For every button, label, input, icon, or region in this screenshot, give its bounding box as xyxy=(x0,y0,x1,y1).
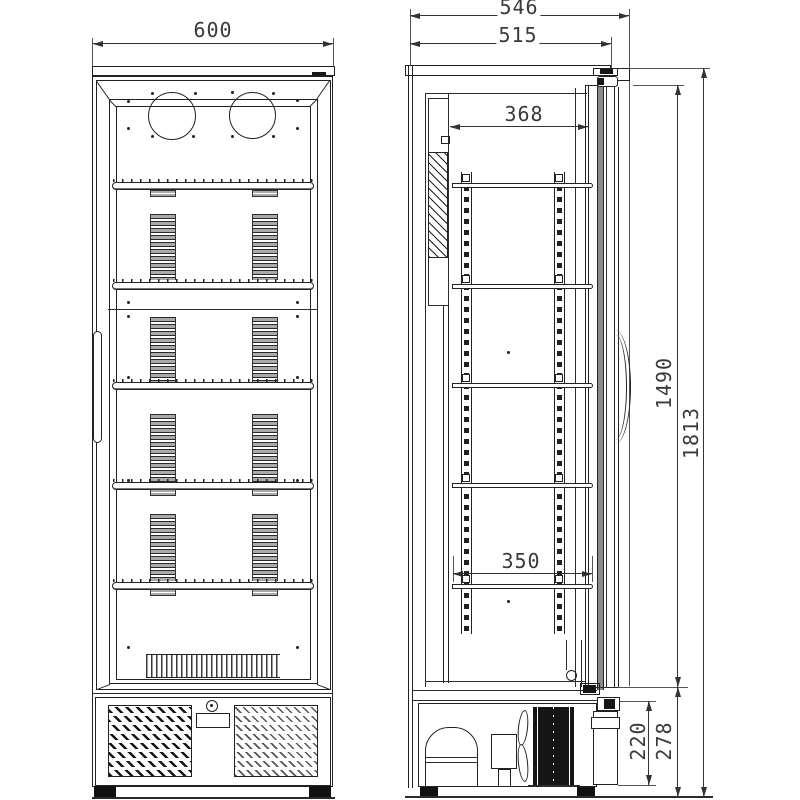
shelf-bracket xyxy=(252,489,278,496)
shelf-bracket-side xyxy=(555,374,563,382)
air-duct-lower xyxy=(443,305,449,683)
door-bottom-hinge xyxy=(583,685,596,693)
shelf-bracket xyxy=(252,190,278,197)
screw-hole xyxy=(272,135,275,138)
dimension-label-body-depth: 515 xyxy=(496,25,539,45)
dimension-label-overall-height: 1813 xyxy=(681,405,701,461)
fan-pedestal xyxy=(498,769,511,787)
shelf-bracket-side xyxy=(462,174,470,182)
interior-floor xyxy=(425,681,585,682)
shelf-bracket-side xyxy=(462,374,470,382)
foot-right xyxy=(309,786,331,797)
dimension-line xyxy=(677,687,678,797)
shelf-side xyxy=(452,383,593,388)
drier-band xyxy=(591,717,620,729)
shelf-bracket-side xyxy=(555,575,563,583)
screw-hole xyxy=(127,301,130,304)
evaporator-grille xyxy=(146,654,280,678)
shelf xyxy=(112,282,314,290)
screw-hole xyxy=(231,135,234,138)
back-wall xyxy=(408,65,413,788)
hinge-pivot-pin xyxy=(598,78,604,85)
fan-motor xyxy=(491,734,517,769)
shelf-bracket-side xyxy=(555,275,563,283)
duct-panel-cap xyxy=(428,98,448,99)
shelf-bracket xyxy=(150,589,176,596)
dimension-line xyxy=(450,126,588,127)
shelf-bracket-side xyxy=(462,575,470,583)
lock-channel xyxy=(566,640,567,670)
duct-panel-front xyxy=(448,93,449,305)
fan-hole-left xyxy=(148,92,196,140)
evaporator-block xyxy=(428,152,448,258)
shelf-track xyxy=(150,214,176,280)
extension-line xyxy=(629,9,630,686)
screw-hole xyxy=(127,100,130,103)
base-line xyxy=(92,693,333,694)
door-handle-front xyxy=(93,331,102,443)
condenser-fin-line xyxy=(537,707,538,785)
dimension-label-shelf-depth: 350 xyxy=(499,551,542,571)
screw-hole xyxy=(296,99,299,102)
shelf-bracket xyxy=(150,489,176,496)
vent-grille-left xyxy=(108,705,192,777)
foot-left xyxy=(94,786,116,797)
glass-edge xyxy=(116,106,311,680)
shelf-track xyxy=(252,414,278,482)
door-glass-core xyxy=(597,85,604,690)
screw-hole xyxy=(272,92,275,95)
dimension-label-machine-compartment-height: 220 xyxy=(628,719,648,762)
shelf-track xyxy=(252,214,278,280)
compressor-band xyxy=(426,762,477,763)
screw-hole xyxy=(151,92,154,95)
extension-line xyxy=(618,785,656,786)
screw-hole xyxy=(151,135,154,138)
shelf-track xyxy=(252,514,278,581)
dimension-line xyxy=(453,573,592,574)
dimension-line xyxy=(93,43,333,44)
screw-hole xyxy=(194,92,197,95)
screw-hole xyxy=(127,315,130,318)
interior-ceiling xyxy=(425,93,587,94)
drier-mount-block xyxy=(604,699,615,709)
shelf xyxy=(112,482,314,490)
door-glass-line xyxy=(606,85,607,687)
compartment-top-line xyxy=(412,700,597,701)
lock-pin xyxy=(210,704,213,707)
door-seam-line xyxy=(108,309,318,310)
condenser-center-line xyxy=(553,707,554,785)
fan-hole-right xyxy=(229,92,276,139)
extension-line xyxy=(333,38,334,66)
shelf-bracket-side xyxy=(462,474,470,482)
dimension-line xyxy=(703,68,704,797)
condenser-fin-line xyxy=(569,707,570,785)
shelf-side xyxy=(452,183,593,188)
duct-panel-side xyxy=(428,98,429,152)
compressor-band xyxy=(426,757,477,758)
lock-cylinder-side xyxy=(566,670,577,681)
condenser-base xyxy=(528,785,580,787)
dimension-label-front-width: 600 xyxy=(191,20,234,40)
dimension-label-overall-depth: 546 xyxy=(497,0,540,17)
shelf-side xyxy=(452,483,593,488)
dimension-line xyxy=(677,85,678,687)
shelf-side xyxy=(452,284,593,289)
screw-hole xyxy=(296,315,299,318)
screw-hole xyxy=(296,646,299,649)
ground-line xyxy=(405,796,713,798)
shelf-bracket xyxy=(150,190,176,197)
technical-drawing-canvas: 600 xyxy=(0,0,800,800)
shelf-track xyxy=(150,414,176,482)
screw-hole xyxy=(127,127,130,130)
top-lid xyxy=(92,66,335,76)
shelf-side xyxy=(452,584,593,589)
lock-channel xyxy=(581,640,582,687)
dimension-label-door-height: 1490 xyxy=(654,355,674,411)
duct-clip xyxy=(441,136,450,144)
shelf-bracket-side xyxy=(555,474,563,482)
ground-line xyxy=(92,797,335,799)
screw-hole xyxy=(507,351,510,354)
shelf xyxy=(112,582,314,590)
screw-hole xyxy=(231,91,234,94)
condenser xyxy=(533,707,574,785)
shelf xyxy=(112,182,314,190)
screw-hole xyxy=(192,135,195,138)
extension-line xyxy=(453,556,454,582)
dimension-label-base-section-height: 278 xyxy=(654,719,674,762)
shelf-rail-rear xyxy=(461,172,472,634)
screw-hole xyxy=(296,127,299,130)
nameplate xyxy=(196,713,230,728)
vent-grille-right xyxy=(234,705,318,777)
dimension-label-interior-depth: 368 xyxy=(502,104,545,124)
interior-floor-lower xyxy=(412,690,597,691)
screw-hole xyxy=(507,600,510,603)
shelf-track xyxy=(150,514,176,581)
interior-back-liner xyxy=(425,93,426,687)
hinge-pin-cover xyxy=(600,69,613,74)
top-panel-side xyxy=(405,65,611,76)
extension-line xyxy=(592,556,593,582)
shelf-bracket-side xyxy=(462,275,470,283)
shelf-bracket-side xyxy=(555,174,563,182)
shelf-rail-front xyxy=(554,172,565,634)
shelf-bracket xyxy=(252,589,278,596)
screw-hole xyxy=(127,646,130,649)
screw-hole xyxy=(296,301,299,304)
duct-panel-side xyxy=(428,258,429,305)
shelf xyxy=(112,382,314,390)
